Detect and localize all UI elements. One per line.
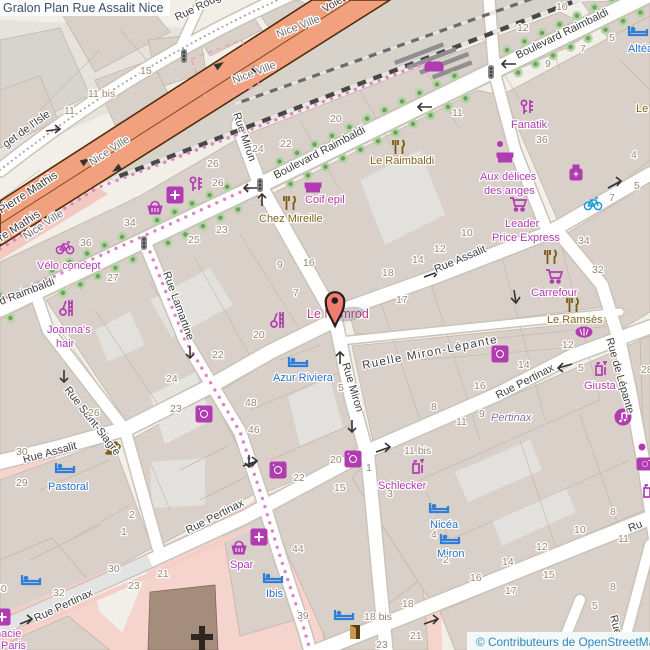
- svg-text:30: 30: [16, 446, 28, 458]
- svg-text:hair: hair: [56, 338, 75, 350]
- svg-text:14: 14: [518, 359, 530, 371]
- svg-text:10: 10: [556, 1, 568, 13]
- svg-text:Chez Mireille: Chez Mireille: [259, 213, 323, 225]
- svg-text:Pertinax: Pertinax: [491, 412, 532, 424]
- svg-text:26: 26: [88, 407, 100, 419]
- svg-text:11: 11: [456, 416, 467, 428]
- svg-text:22: 22: [212, 349, 224, 361]
- svg-text:32: 32: [53, 587, 65, 599]
- svg-text:Coif epil: Coif epil: [305, 194, 345, 206]
- svg-text:11 bis: 11 bis: [404, 445, 431, 457]
- svg-text:Leader: Leader: [505, 218, 540, 230]
- svg-text:9: 9: [277, 259, 283, 271]
- svg-text:26: 26: [212, 177, 224, 189]
- svg-text:5: 5: [578, 362, 584, 374]
- svg-text:29: 29: [16, 477, 28, 489]
- svg-text:Le M: Le M: [636, 103, 650, 115]
- svg-text:Ibis: Ibis: [266, 588, 284, 600]
- svg-text:26: 26: [207, 158, 219, 170]
- svg-text:20: 20: [330, 113, 342, 125]
- svg-text:22: 22: [280, 138, 292, 150]
- svg-text:11: 11: [64, 105, 75, 117]
- svg-text:15: 15: [334, 482, 346, 494]
- svg-text:macie: macie: [0, 628, 21, 640]
- svg-text:23: 23: [216, 224, 228, 236]
- svg-text:Joanna's: Joanna's: [47, 324, 91, 336]
- svg-text:14: 14: [502, 556, 514, 568]
- svg-text:Gralon Plan Rue Assalit Nice: Gralon Plan Rue Assalit Nice: [3, 1, 164, 15]
- svg-text:Schlecker: Schlecker: [378, 480, 427, 492]
- svg-text:34: 34: [124, 217, 136, 229]
- svg-text:39: 39: [297, 610, 309, 622]
- svg-text:Pastoral: Pastoral: [48, 481, 88, 493]
- svg-text:12: 12: [517, 22, 529, 34]
- svg-text:Price Express: Price Express: [492, 232, 560, 244]
- svg-text:4: 4: [631, 149, 637, 161]
- svg-text:11 bis: 11 bis: [88, 88, 115, 100]
- svg-text:12: 12: [562, 339, 574, 351]
- svg-text:18 bis: 18 bis: [364, 611, 392, 623]
- svg-text:16: 16: [474, 380, 486, 392]
- svg-text:Giusta: Giusta: [584, 380, 617, 392]
- svg-text:10: 10: [574, 524, 586, 536]
- svg-text:11: 11: [452, 107, 463, 119]
- svg-text:46: 46: [248, 424, 260, 436]
- svg-text:50: 50: [0, 583, 7, 595]
- svg-text:© Contributeurs de OpenStreetM: © Contributeurs de OpenStreetMap: [476, 635, 650, 649]
- svg-text:2: 2: [443, 554, 449, 566]
- svg-text:36: 36: [536, 134, 548, 146]
- svg-text:3: 3: [387, 488, 393, 500]
- svg-text:21: 21: [410, 630, 422, 642]
- svg-text:1: 1: [366, 462, 372, 474]
- svg-text:Altéa: Altéa: [628, 43, 650, 55]
- svg-text:14: 14: [412, 254, 424, 266]
- svg-text:23: 23: [376, 639, 388, 650]
- svg-text:18: 18: [382, 267, 394, 279]
- svg-text:Le Ramsès: Le Ramsès: [547, 314, 603, 326]
- svg-text:24: 24: [166, 373, 178, 385]
- svg-text:22: 22: [293, 472, 305, 484]
- svg-text:8: 8: [610, 581, 616, 593]
- svg-text:9: 9: [479, 408, 485, 420]
- svg-text:27: 27: [107, 272, 119, 284]
- svg-text:32: 32: [592, 264, 604, 276]
- svg-text:Azur Riviera: Azur Riviera: [273, 372, 334, 384]
- svg-text:7: 7: [580, 43, 586, 55]
- svg-text:2: 2: [129, 509, 135, 521]
- svg-text:23: 23: [128, 580, 140, 592]
- svg-text:5: 5: [592, 600, 598, 612]
- svg-text:15: 15: [140, 65, 152, 77]
- svg-text:12: 12: [536, 541, 548, 553]
- svg-text:23: 23: [170, 403, 182, 415]
- svg-text:34: 34: [578, 235, 590, 247]
- svg-text:8: 8: [610, 506, 616, 518]
- svg-text:8: 8: [431, 401, 437, 413]
- svg-text:21: 21: [157, 568, 169, 580]
- svg-text:Fanatik: Fanatik: [511, 119, 548, 131]
- svg-text:24: 24: [252, 143, 264, 155]
- svg-text:Carrefour: Carrefour: [531, 287, 578, 299]
- svg-text:15: 15: [543, 569, 555, 581]
- svg-text:16: 16: [303, 257, 315, 269]
- svg-text:20: 20: [330, 454, 342, 466]
- svg-text:Paris: Paris: [1, 640, 27, 650]
- svg-text:30: 30: [108, 563, 120, 575]
- svg-text:4: 4: [431, 529, 437, 541]
- svg-text:Aux délices: Aux délices: [480, 171, 537, 183]
- svg-text:5: 5: [609, 32, 615, 44]
- svg-text:44: 44: [292, 543, 304, 555]
- svg-text:25: 25: [188, 234, 200, 246]
- svg-text:Vélo concept: Vélo concept: [37, 260, 101, 272]
- svg-text:Spar: Spar: [230, 559, 254, 571]
- svg-text:10: 10: [461, 227, 473, 239]
- svg-text:28: 28: [641, 364, 650, 376]
- svg-text:5: 5: [338, 382, 344, 394]
- svg-text:5: 5: [634, 180, 640, 192]
- svg-text:Miron: Miron: [437, 548, 465, 560]
- svg-text:17: 17: [396, 294, 408, 306]
- svg-text:7: 7: [609, 192, 615, 204]
- svg-text:11: 11: [618, 533, 629, 545]
- svg-text:48: 48: [245, 397, 257, 409]
- svg-text:Le Raimbaldi: Le Raimbaldi: [370, 155, 434, 167]
- svg-text:20: 20: [253, 329, 265, 341]
- svg-text:1: 1: [121, 526, 127, 538]
- svg-text:18: 18: [402, 598, 414, 610]
- svg-text:16: 16: [470, 572, 482, 584]
- svg-text:des anges: des anges: [484, 185, 535, 197]
- svg-text:9: 9: [545, 58, 551, 70]
- svg-text:17: 17: [505, 585, 517, 597]
- svg-text:36: 36: [80, 237, 92, 249]
- svg-text:12: 12: [434, 243, 446, 255]
- svg-text:7: 7: [293, 287, 299, 299]
